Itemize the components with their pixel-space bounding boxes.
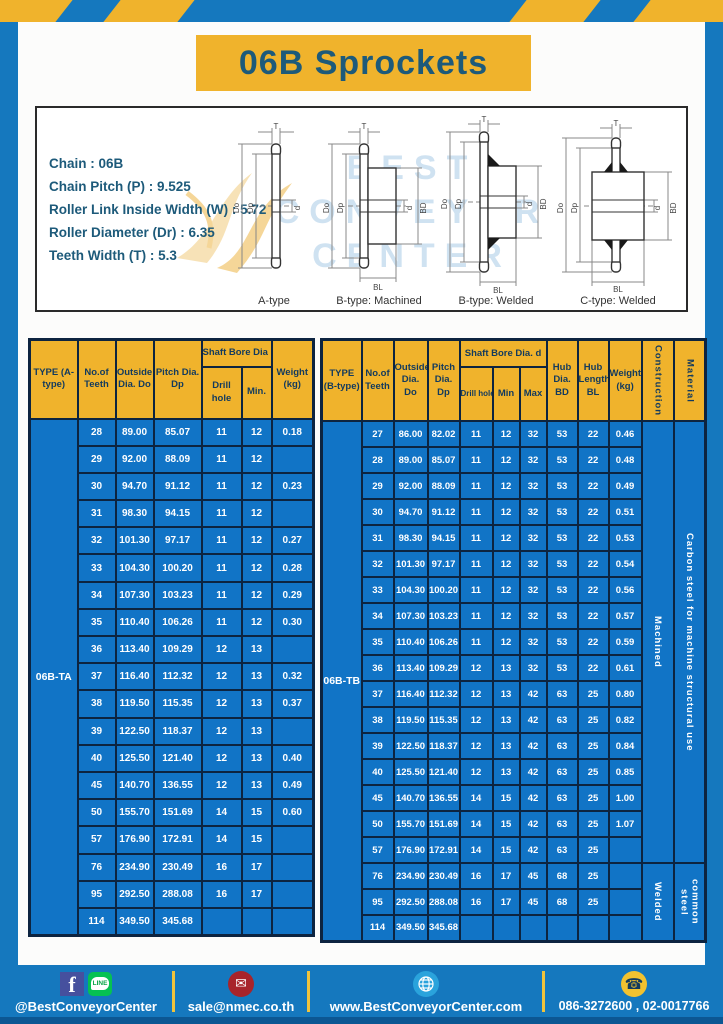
stripe-decoration <box>99 0 200 22</box>
data-cell: 11 <box>202 609 242 636</box>
data-cell: 34 <box>362 603 394 629</box>
data-cell: 0.27 <box>272 527 314 554</box>
construction-cell: Welded <box>642 863 674 941</box>
data-cell: 106.26 <box>428 629 460 655</box>
footer-website-section: www.BestConveyorCenter.com <box>310 965 542 1024</box>
data-cell: 11 <box>460 603 493 629</box>
data-cell: 1.00 <box>609 785 642 811</box>
data-cell <box>609 915 642 941</box>
footer-contact-bar: f LINE @BestConveyorCenter ✉ sale@nmec.c… <box>0 965 723 1024</box>
data-cell: 40 <box>78 745 116 772</box>
data-cell: 25 <box>578 863 609 889</box>
data-cell: 17 <box>242 854 272 881</box>
data-cell <box>609 889 642 915</box>
data-cell: 82.02 <box>428 421 460 447</box>
dim-label-t: T <box>274 122 279 131</box>
data-cell: 115.35 <box>428 707 460 733</box>
data-cell: 292.50 <box>116 881 154 908</box>
data-cell: 28 <box>362 447 394 473</box>
data-cell: 12 <box>493 629 520 655</box>
data-cell: 16 <box>202 881 242 908</box>
data-cell: 104.30 <box>394 577 428 603</box>
dim-label-d: d <box>405 206 414 210</box>
data-cell: 16 <box>460 863 493 889</box>
dim-label-bl: BL <box>613 285 623 294</box>
data-cell: 121.40 <box>154 745 202 772</box>
data-cell: 53 <box>547 629 578 655</box>
top-stripe-band <box>0 0 723 22</box>
data-cell: 11 <box>202 419 242 446</box>
phone-icon: ☎ <box>621 971 647 997</box>
data-cell: 17 <box>493 889 520 915</box>
col-header-weight: Weight (kg) <box>272 340 314 419</box>
data-cell: 29 <box>362 473 394 499</box>
data-cell: 292.50 <box>394 889 428 915</box>
dim-label-do: Do <box>440 198 449 209</box>
data-cell: 155.70 <box>116 799 154 826</box>
data-cell: 95 <box>362 889 394 915</box>
dim-label-bl: BL <box>493 286 503 294</box>
data-cell <box>272 446 314 473</box>
table-header-row: TYPE (A-type) No.of Teeth Outside Dia. D… <box>30 340 314 367</box>
data-cell: 0.23 <box>272 473 314 500</box>
data-cell: 234.90 <box>116 854 154 881</box>
data-cell: 12 <box>493 447 520 473</box>
data-cell: 32 <box>520 551 547 577</box>
data-cell: 34 <box>78 582 116 609</box>
data-cell: 57 <box>362 837 394 863</box>
data-cell: 12 <box>493 499 520 525</box>
col-header-shaft-bore: Shaft Bore Dia d <box>202 340 272 367</box>
footer-bottom-strip <box>0 1017 723 1024</box>
catalog-page: 06B Sprockets BEST CONVEYOR CENTER Chain… <box>0 0 723 1024</box>
data-cell: 25 <box>578 733 609 759</box>
data-cell: 12 <box>493 473 520 499</box>
data-cell: 36 <box>78 636 116 663</box>
dim-label-dp: Dp <box>336 202 345 213</box>
data-cell: 107.30 <box>394 603 428 629</box>
data-cell: 12 <box>493 525 520 551</box>
data-cell <box>272 826 314 853</box>
dim-label-t: T <box>482 116 487 124</box>
data-cell: 0.28 <box>272 554 314 581</box>
data-cell: 13 <box>493 759 520 785</box>
line-icon: LINE <box>88 972 112 996</box>
data-cell: 14 <box>202 799 242 826</box>
data-cell: 104.30 <box>116 554 154 581</box>
data-cell: 12 <box>493 421 520 447</box>
data-cell: 11 <box>460 499 493 525</box>
data-cell: 116.40 <box>116 663 154 690</box>
data-cell: 11 <box>460 525 493 551</box>
data-cell: 22 <box>578 655 609 681</box>
data-cell: 86.00 <box>394 421 428 447</box>
data-cell <box>272 908 314 935</box>
data-cell: 13 <box>242 745 272 772</box>
data-cell: 94.15 <box>428 525 460 551</box>
data-cell: 12 <box>242 609 272 636</box>
data-cell <box>242 908 272 935</box>
caption-b-type-machined: B-type: Machined <box>336 295 422 307</box>
data-cell: 27 <box>362 421 394 447</box>
page-body: 06B Sprockets BEST CONVEYOR CENTER Chain… <box>18 22 705 965</box>
data-cell: 68 <box>547 863 578 889</box>
data-cell: 92.00 <box>116 446 154 473</box>
data-cell: 11 <box>460 473 493 499</box>
data-cell: 17 <box>242 881 272 908</box>
data-cell: 97.17 <box>428 551 460 577</box>
data-cell: 118.37 <box>428 733 460 759</box>
data-cell: 25 <box>578 889 609 915</box>
table-row: 06B-TB2786.0082.0211123253220.46Machined… <box>322 421 706 447</box>
data-cell: 63 <box>547 811 578 837</box>
data-cell: 101.30 <box>116 527 154 554</box>
data-cell: 14 <box>202 826 242 853</box>
data-cell <box>272 718 314 745</box>
data-cell: 115.35 <box>154 690 202 717</box>
data-cell <box>272 636 314 663</box>
data-cell: 63 <box>547 681 578 707</box>
data-cell: 32 <box>520 447 547 473</box>
data-cell: 14 <box>460 837 493 863</box>
data-cell: 32 <box>520 603 547 629</box>
data-cell: 42 <box>520 811 547 837</box>
dim-label-do: Do <box>232 202 241 213</box>
dim-label-do: Do <box>556 202 565 213</box>
data-cell: 12 <box>242 582 272 609</box>
data-cell: 109.29 <box>428 655 460 681</box>
data-cell: 11 <box>460 421 493 447</box>
data-cell: 12 <box>202 718 242 745</box>
data-cell: 22 <box>578 603 609 629</box>
data-cell: 349.50 <box>394 915 428 941</box>
dim-label-d: d <box>653 206 662 210</box>
figure-c-type-welded: T Do Dp d BD BL C-type: Welded <box>556 120 680 307</box>
data-cell: 109.29 <box>154 636 202 663</box>
data-cell: 53 <box>547 603 578 629</box>
dim-label-bd: BD <box>539 198 548 209</box>
data-cell: 12 <box>460 707 493 733</box>
data-cell: 230.49 <box>154 854 202 881</box>
data-cell: 42 <box>520 837 547 863</box>
data-cell: 110.40 <box>116 609 154 636</box>
data-cell: 37 <box>362 681 394 707</box>
data-cell: 22 <box>578 551 609 577</box>
data-cell: 11 <box>202 527 242 554</box>
data-cell: 39 <box>78 718 116 745</box>
data-cell: 12 <box>242 554 272 581</box>
line-badge-text: LINE <box>91 977 110 990</box>
data-cell: 22 <box>578 473 609 499</box>
data-cell: 113.40 <box>394 655 428 681</box>
data-cell: 349.50 <box>116 908 154 935</box>
col-header-pitch-dia: Pitch Dia. Dp <box>428 340 460 422</box>
data-cell: 12 <box>493 603 520 629</box>
data-cell: 91.12 <box>154 473 202 500</box>
data-cell: 22 <box>578 447 609 473</box>
data-cell: 32 <box>520 629 547 655</box>
figure-a-type: T Do Dp d A-type <box>228 120 320 307</box>
data-cell: 172.91 <box>428 837 460 863</box>
data-cell: 15 <box>493 811 520 837</box>
table-row: 06B-TA2889.0085.0711120.18 <box>30 419 314 446</box>
data-cell: 140.70 <box>394 785 428 811</box>
data-cell: 25 <box>578 759 609 785</box>
data-cell: 15 <box>242 826 272 853</box>
dim-label-t: T <box>362 122 367 131</box>
data-cell <box>609 863 642 889</box>
data-cell: 121.40 <box>428 759 460 785</box>
data-cell: 288.08 <box>428 889 460 915</box>
data-cell: 33 <box>78 554 116 581</box>
data-cell: 12 <box>242 419 272 446</box>
data-cell: 345.68 <box>428 915 460 941</box>
data-cell: 88.09 <box>428 473 460 499</box>
data-cell: 100.20 <box>428 577 460 603</box>
col-header-min: Min. <box>242 367 272 419</box>
dim-label-dp: Dp <box>454 198 463 209</box>
data-cell: 13 <box>493 681 520 707</box>
data-cell: 176.90 <box>394 837 428 863</box>
stripe-decoration <box>0 0 77 22</box>
footer-email-section: ✉ sale@nmec.co.th <box>175 965 307 1024</box>
col-header-construction: Construction <box>642 340 674 422</box>
data-cell: 11 <box>202 446 242 473</box>
data-cell: 32 <box>520 655 547 681</box>
data-cell: 0.51 <box>609 499 642 525</box>
data-cell: 30 <box>362 499 394 525</box>
data-cell: 38 <box>78 690 116 717</box>
stripe-decoration <box>629 0 723 22</box>
data-cell: 92.00 <box>394 473 428 499</box>
data-cell: 13 <box>493 655 520 681</box>
footer-social-section: f LINE @BestConveyorCenter <box>0 965 172 1024</box>
facebook-icon: f <box>60 972 84 996</box>
data-cell: 85.07 <box>154 419 202 446</box>
data-cell: 114 <box>78 908 116 935</box>
data-cell: 11 <box>202 554 242 581</box>
data-cell: 0.57 <box>609 603 642 629</box>
data-cell: 53 <box>547 525 578 551</box>
data-cell: 13 <box>242 718 272 745</box>
data-cell: 42 <box>520 681 547 707</box>
data-cell: 288.08 <box>154 881 202 908</box>
data-cell: 22 <box>578 499 609 525</box>
col-header-weight: Weight (kg) <box>609 340 642 422</box>
b-type-table: TYPE (B-type) No.of Teeth Outside Dia. D… <box>320 338 707 943</box>
data-cell: 12 <box>493 577 520 603</box>
data-cell: 53 <box>547 499 578 525</box>
data-cell: 176.90 <box>116 826 154 853</box>
data-cell: 12 <box>493 551 520 577</box>
footer-phone-section: ☎ 086-3272600 , 02-0017766 <box>545 965 723 1024</box>
data-cell: 0.59 <box>609 629 642 655</box>
data-cell <box>547 915 578 941</box>
data-cell: 107.30 <box>116 582 154 609</box>
type-label-cell: 06B-TA <box>30 419 78 936</box>
data-cell: 103.23 <box>154 582 202 609</box>
dim-label-d: d <box>293 206 302 210</box>
data-cell: 32 <box>520 421 547 447</box>
data-cell: 32 <box>520 499 547 525</box>
data-cell: 0.85 <box>609 759 642 785</box>
data-cell <box>202 908 242 935</box>
data-cell: 29 <box>78 446 116 473</box>
data-cell: 12 <box>202 663 242 690</box>
data-cell: 35 <box>78 609 116 636</box>
data-cell: 53 <box>547 421 578 447</box>
data-cell: 45 <box>78 772 116 799</box>
col-header-drill-hole: Drill hole <box>202 367 242 419</box>
data-cell: 0.49 <box>272 772 314 799</box>
data-cell: 12 <box>202 690 242 717</box>
material-cell: Carbon steel for machine structural use <box>674 421 706 863</box>
data-cell: 94.70 <box>394 499 428 525</box>
data-cell: 11 <box>460 577 493 603</box>
type-label-cell: 06B-TB <box>322 421 362 941</box>
data-cell: 94.70 <box>116 473 154 500</box>
data-cell: 0.49 <box>609 473 642 499</box>
data-cell: 13 <box>493 707 520 733</box>
col-header-hub-dia: Hub Dia. BD <box>547 340 578 422</box>
col-header-outside-dia: Outside Dia. Do <box>116 340 154 419</box>
data-cell: 76 <box>78 854 116 881</box>
data-cell: 119.50 <box>116 690 154 717</box>
a-type-table: TYPE (A-type) No.of Teeth Outside Dia. D… <box>28 338 315 937</box>
data-cell: 13 <box>242 690 272 717</box>
data-cell: 40 <box>362 759 394 785</box>
dim-label-t: T <box>614 120 619 128</box>
data-cell: 13 <box>242 663 272 690</box>
data-cell: 136.55 <box>154 772 202 799</box>
col-header-hub-length: Hub Length BL <box>578 340 609 422</box>
data-cell: 32 <box>362 551 394 577</box>
data-cell <box>460 915 493 941</box>
data-cell: 12 <box>202 636 242 663</box>
data-cell: 95 <box>78 881 116 908</box>
data-cell: 0.56 <box>609 577 642 603</box>
data-cell: 17 <box>493 863 520 889</box>
caption-b-type-welded: B-type: Welded <box>458 295 533 307</box>
data-cell: 25 <box>578 811 609 837</box>
data-cell: 125.50 <box>116 745 154 772</box>
data-cell: 97.17 <box>154 527 202 554</box>
data-cell: 230.49 <box>428 863 460 889</box>
col-header-type: TYPE (B-type) <box>322 340 362 422</box>
data-cell: 0.46 <box>609 421 642 447</box>
data-cell: 98.30 <box>394 525 428 551</box>
data-cell: 76 <box>362 863 394 889</box>
data-cell: 63 <box>547 837 578 863</box>
data-cell: 31 <box>362 525 394 551</box>
data-cell: 11 <box>202 500 242 527</box>
data-cell: 112.32 <box>428 681 460 707</box>
data-cell: 45 <box>362 785 394 811</box>
data-cell: 12 <box>202 745 242 772</box>
data-cell <box>272 881 314 908</box>
data-cell: 13 <box>493 733 520 759</box>
figure-b-type-welded: T Do Dp d BD BL B-type: Welded <box>438 116 554 307</box>
stripe-decoration <box>505 0 606 22</box>
data-cell: 11 <box>460 551 493 577</box>
data-cell: 42 <box>520 733 547 759</box>
data-cell: 32 <box>520 473 547 499</box>
data-cell: 30 <box>78 473 116 500</box>
data-cell: 116.40 <box>394 681 428 707</box>
col-header-material: Material <box>674 340 706 422</box>
col-header-teeth: No.of Teeth <box>362 340 394 422</box>
data-cell: 1.07 <box>609 811 642 837</box>
data-cell: 68 <box>547 889 578 915</box>
data-cell <box>578 915 609 941</box>
data-cell: 22 <box>578 525 609 551</box>
data-cell: 12 <box>460 759 493 785</box>
a-type-drawing: T Do Dp d <box>228 120 320 294</box>
b-type-machined-drawing: T Do Dp d BD BL <box>322 120 436 294</box>
col-header-outside-dia: Outside Dia. Do <box>394 340 428 422</box>
data-cell: 0.37 <box>272 690 314 717</box>
data-cell: 0.80 <box>609 681 642 707</box>
data-cell: 0.29 <box>272 582 314 609</box>
data-cell: 85.07 <box>428 447 460 473</box>
data-cell: 32 <box>78 527 116 554</box>
data-cell: 53 <box>547 447 578 473</box>
data-cell: 13 <box>242 636 272 663</box>
data-cell: 33 <box>362 577 394 603</box>
data-cell: 16 <box>460 889 493 915</box>
data-cell: 42 <box>520 785 547 811</box>
data-cell: 0.60 <box>272 799 314 826</box>
construction-cell: Machined <box>642 421 674 863</box>
data-cell: 53 <box>547 551 578 577</box>
data-cell: 16 <box>202 854 242 881</box>
data-cell: 122.50 <box>394 733 428 759</box>
dim-label-dp: Dp <box>570 202 579 213</box>
data-cell: 151.69 <box>428 811 460 837</box>
data-cell: 63 <box>547 759 578 785</box>
data-cell: 11 <box>460 447 493 473</box>
data-cell: 0.18 <box>272 419 314 446</box>
data-cell: 0.84 <box>609 733 642 759</box>
data-cell: 118.37 <box>154 718 202 745</box>
c-type-welded-drawing: T Do Dp d BD BL <box>556 120 680 294</box>
phone-numbers: 086-3272600 , 02-0017766 <box>559 999 710 1013</box>
data-cell: 63 <box>547 785 578 811</box>
col-header-max: Max <box>520 367 547 421</box>
figure-b-type-machined: T Do Dp d BD BL B-type: Machined <box>322 120 436 307</box>
data-cell: 25 <box>578 837 609 863</box>
data-cell: 39 <box>362 733 394 759</box>
data-cell: 0.40 <box>272 745 314 772</box>
col-header-shaft-bore: Shaft Bore Dia. d <box>460 340 547 368</box>
data-cell: 0.30 <box>272 609 314 636</box>
dim-label-bl: BL <box>373 283 383 292</box>
material-cell: common steel <box>674 863 706 941</box>
data-cell: 12 <box>460 655 493 681</box>
data-cell: 0.53 <box>609 525 642 551</box>
data-cell: 37 <box>78 663 116 690</box>
data-cell: 12 <box>460 733 493 759</box>
data-cell: 38 <box>362 707 394 733</box>
data-cell: 57 <box>78 826 116 853</box>
data-cell: 12 <box>242 527 272 554</box>
data-cell: 151.69 <box>154 799 202 826</box>
data-cell: 14 <box>460 785 493 811</box>
b-type-welded-drawing: T Do Dp d BD BL <box>438 116 554 294</box>
data-cell: 88.09 <box>154 446 202 473</box>
data-cell: 50 <box>362 811 394 837</box>
data-cell: 63 <box>547 707 578 733</box>
